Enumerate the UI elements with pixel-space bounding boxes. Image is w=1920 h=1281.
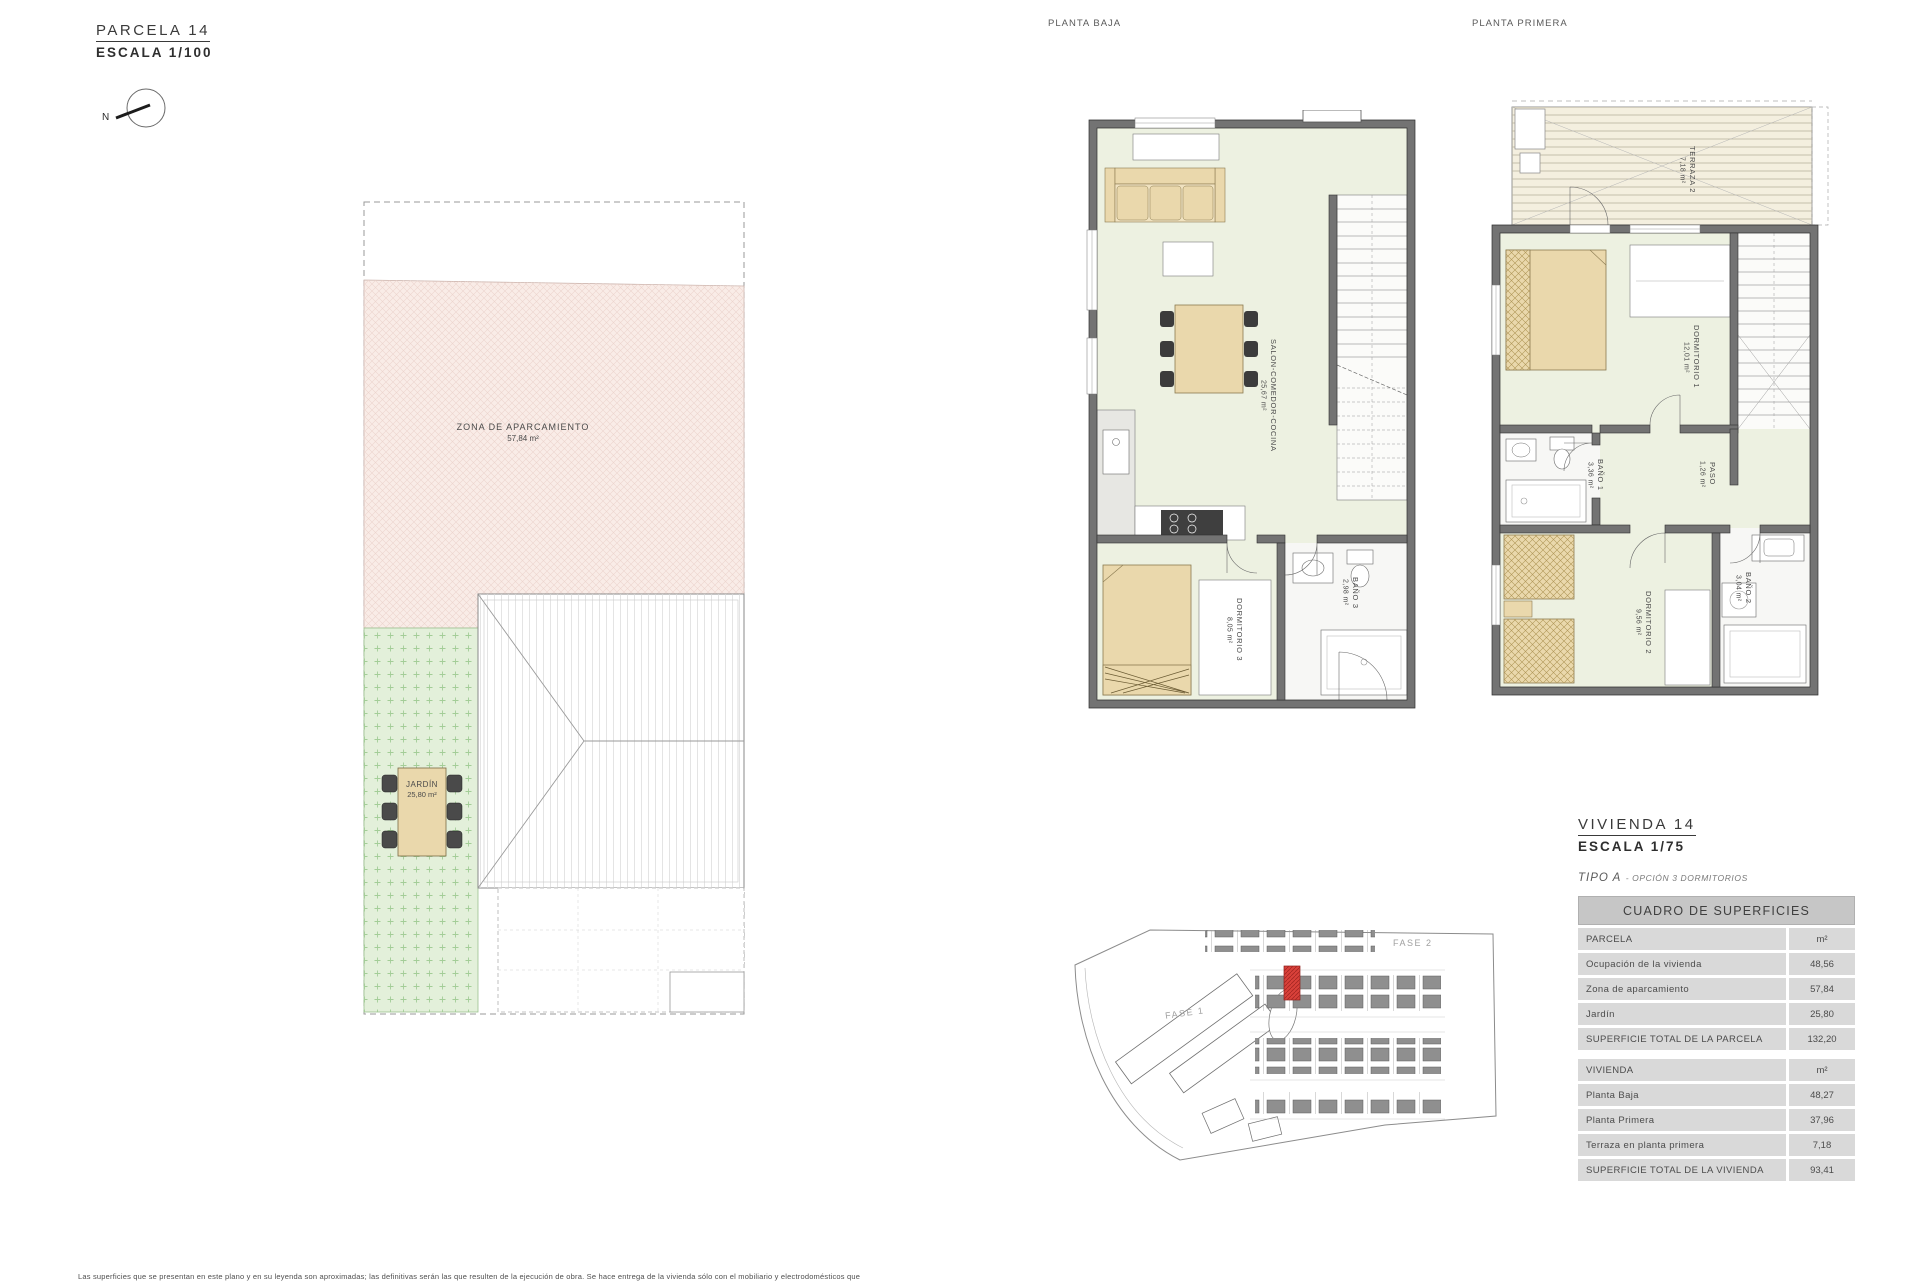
- north-label: N: [102, 112, 109, 123]
- vivienda-scale: ESCALA 1/75: [1578, 839, 1748, 854]
- cuadro-de-superficies: CUADRO DE SUPERFICIES PARCELA m² Ocupaci…: [1578, 896, 1855, 1181]
- planta-baja-drawing: [1075, 110, 1425, 730]
- table-row: VIVIENDA m²: [1578, 1059, 1855, 1081]
- table-row: PARCELA m²: [1578, 928, 1855, 950]
- house-roof: [478, 594, 744, 888]
- coffee-table: [1163, 242, 1213, 276]
- bed-dormitorio3: [1103, 565, 1191, 695]
- planta-primera-drawing: [1480, 95, 1830, 720]
- terrace: [1512, 101, 1828, 225]
- parking-zone: [364, 280, 744, 628]
- north-arrow-icon: [100, 80, 180, 144]
- staircase: [1337, 195, 1407, 500]
- highlighted-unit: [1284, 966, 1300, 1000]
- vivienda-tipo: TIPO A - OPCIÓN 3 DORMITORIOS: [1578, 868, 1748, 886]
- site-location-drawing: [1055, 920, 1515, 1170]
- parcela-scale: ESCALA 1/100: [96, 45, 213, 60]
- site-plan: ZONA DE APARCAMIENTO 57,84 m² JARDÍN 25,…: [358, 200, 750, 1020]
- planta-baja-plan: SALON-COMEDOR-COCINA 25,67 m² DORMITORIO…: [1075, 110, 1425, 730]
- north-compass: N: [100, 80, 180, 144]
- garden-table-set: [382, 768, 462, 856]
- table-row: Planta Baja 48,27: [1578, 1084, 1855, 1106]
- wardrobe-dormitorio3: [1199, 580, 1271, 695]
- patio-area: [498, 888, 744, 1012]
- planta-primera-plan: TERRAZA 2 7,18 m² DORMITORIO 1 12,01 m² …: [1480, 95, 1830, 720]
- site-location-map: FASE 1 FASE 2: [1055, 920, 1515, 1170]
- planta-primera-title: PLANTA PRIMERA: [1472, 18, 1568, 29]
- dining-table-set: [1160, 305, 1258, 393]
- table-row: Jardín 25,80: [1578, 1003, 1855, 1025]
- table-header: CUADRO DE SUPERFICIES: [1578, 896, 1855, 925]
- table-row-total: SUPERFICIE TOTAL DE LA PARCELA 132,20: [1578, 1028, 1855, 1050]
- plan-sheet: { "parcela": { "title": "PARCELA 14", "s…: [0, 0, 1920, 1280]
- closet-dormitorio1: [1630, 245, 1730, 317]
- table-row-total: SUPERFICIE TOTAL DE LA VIVIENDA 93,41: [1578, 1159, 1855, 1181]
- vivienda-title-block: VIVIENDA 14 ESCALA 1/75 TIPO A - OPCIÓN …: [1578, 816, 1748, 886]
- vivienda-title: VIVIENDA 14: [1578, 816, 1696, 836]
- planta-baja-title: PLANTA BAJA: [1048, 18, 1121, 29]
- site-plan-drawing: [358, 200, 750, 1020]
- table-row: Planta Primera 37,96: [1578, 1109, 1855, 1131]
- parcela-title: PARCELA 14: [96, 22, 210, 42]
- table-row: Zona de aparcamiento 57,84: [1578, 978, 1855, 1000]
- bed-dormitorio1: [1506, 250, 1606, 370]
- table-row: Ocupación de la vivienda 48,56: [1578, 953, 1855, 975]
- parcela-title-block: PARCELA 14 ESCALA 1/100: [96, 22, 213, 60]
- table-row: Terraza en planta primera 7,18: [1578, 1134, 1855, 1156]
